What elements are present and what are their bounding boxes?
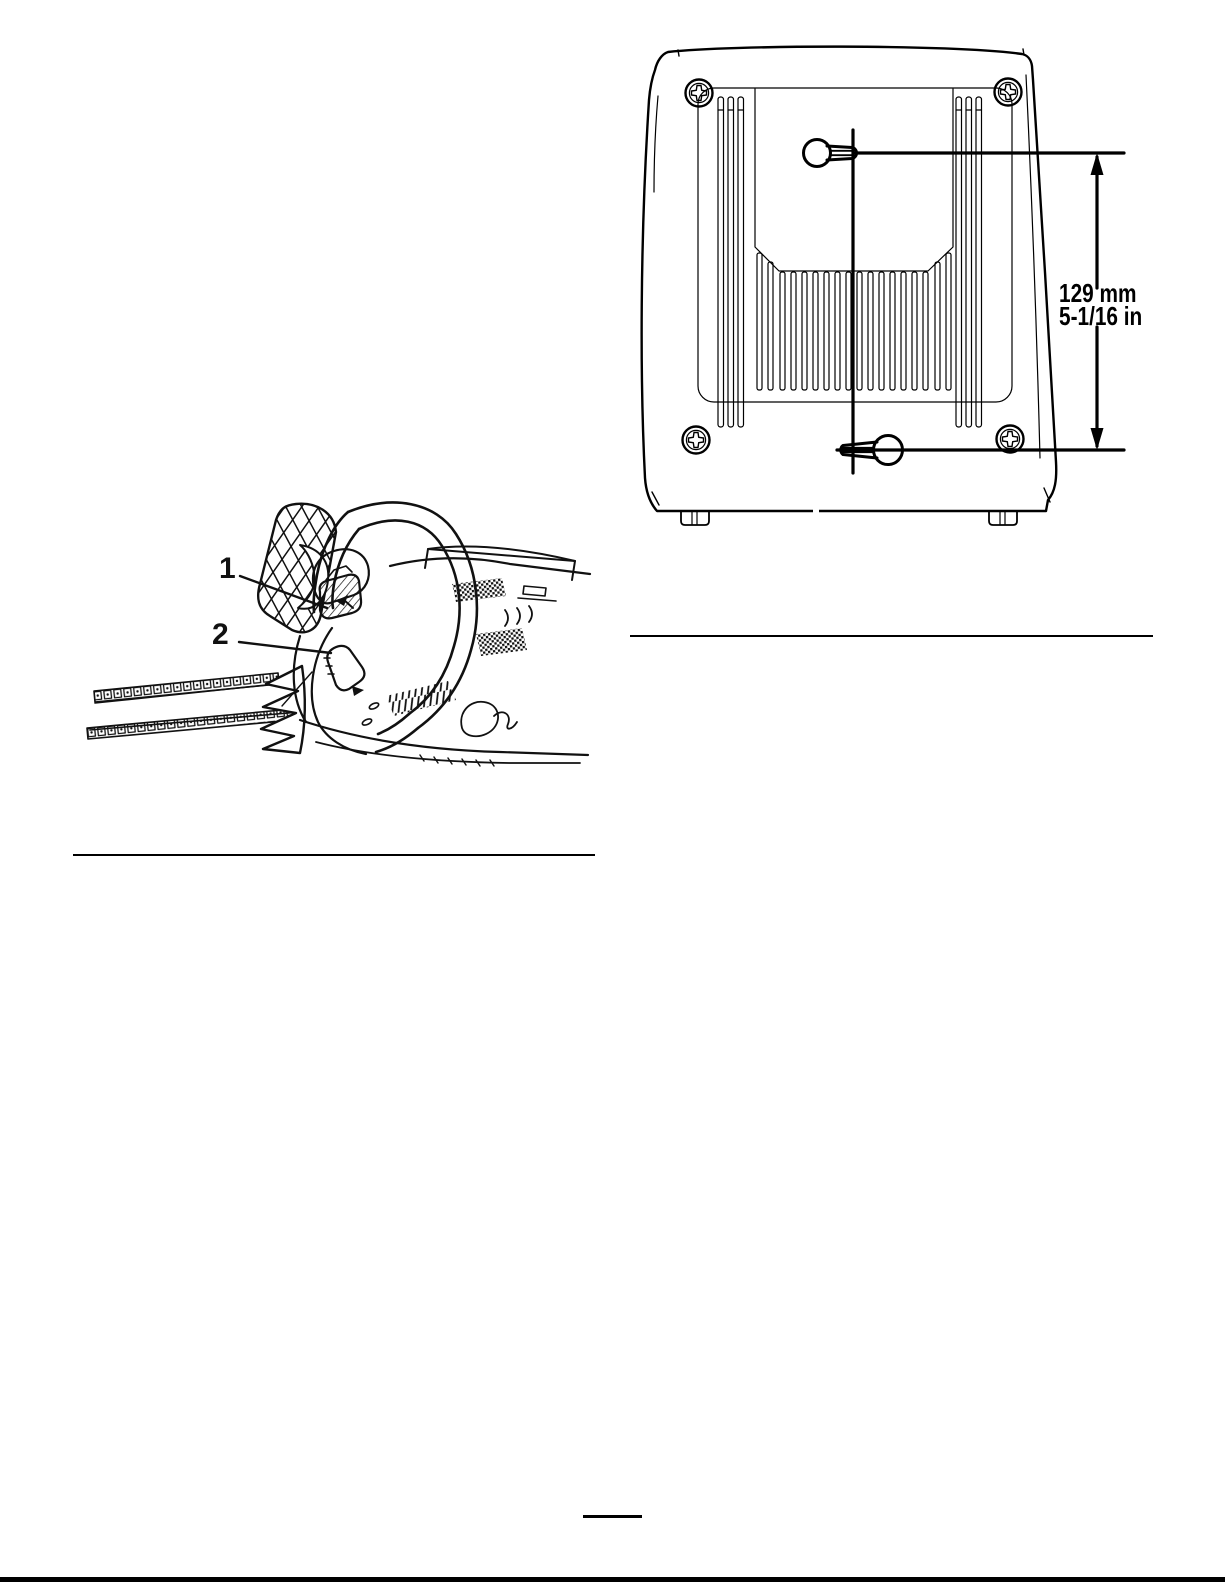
page-bottom-bar [0, 1577, 1225, 1582]
manual-page: 1 2 [0, 0, 1225, 1585]
callout-1: 1 [219, 556, 236, 582]
footnote-rule [583, 1515, 642, 1518]
arrowhead-down [1091, 428, 1104, 450]
keyhole-slot-top [804, 140, 857, 167]
callout-2: 2 [212, 622, 229, 648]
leader-line-2 [239, 642, 331, 653]
figure-chainsaw-oil-callouts [80, 495, 600, 780]
charger-feet [681, 511, 1017, 525]
column-divider-right [630, 635, 1153, 637]
brand-logo-script [461, 702, 517, 736]
arrowhead-up [1091, 153, 1104, 175]
charger-back-panel [698, 88, 1012, 402]
dimension-imperial: 5-1/16 in [1059, 305, 1142, 328]
column-divider-left [73, 854, 595, 856]
chainsaw-line-art [80, 495, 600, 780]
saw-chain-top [94, 673, 279, 702]
dimension-label: 129 mm 5-1/16 in [1059, 282, 1142, 328]
